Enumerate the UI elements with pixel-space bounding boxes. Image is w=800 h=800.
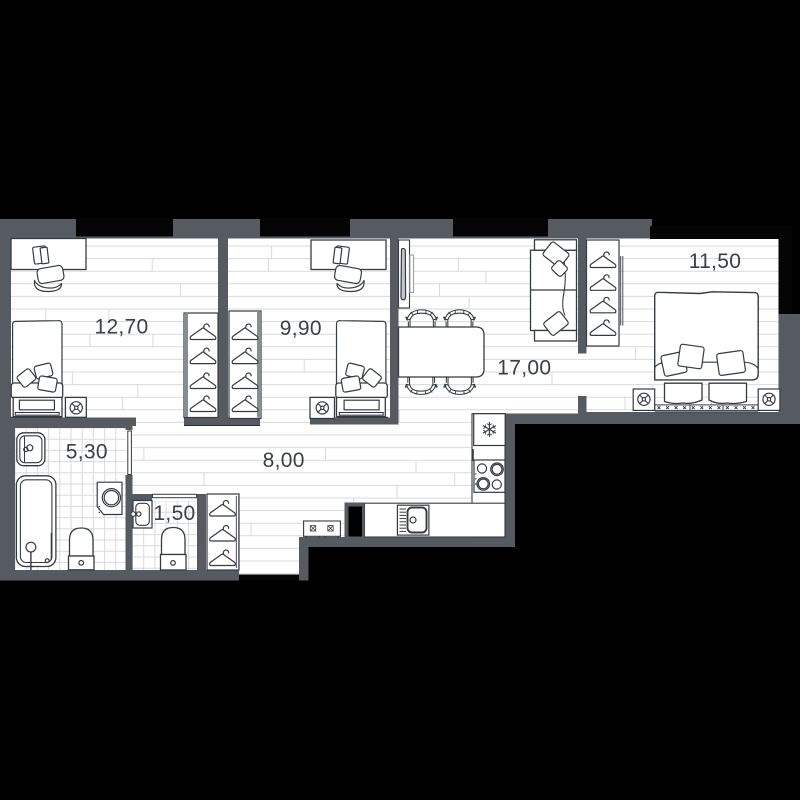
svg-text:11,50: 11,50 [689,250,742,273]
svg-text:1,50: 1,50 [153,502,195,525]
svg-text:9,90: 9,90 [280,317,322,340]
svg-text:17,00: 17,00 [497,357,551,380]
svg-text:12,70: 12,70 [94,316,148,339]
svg-text:5,30: 5,30 [66,441,108,464]
svg-text:8,00: 8,00 [263,449,305,472]
